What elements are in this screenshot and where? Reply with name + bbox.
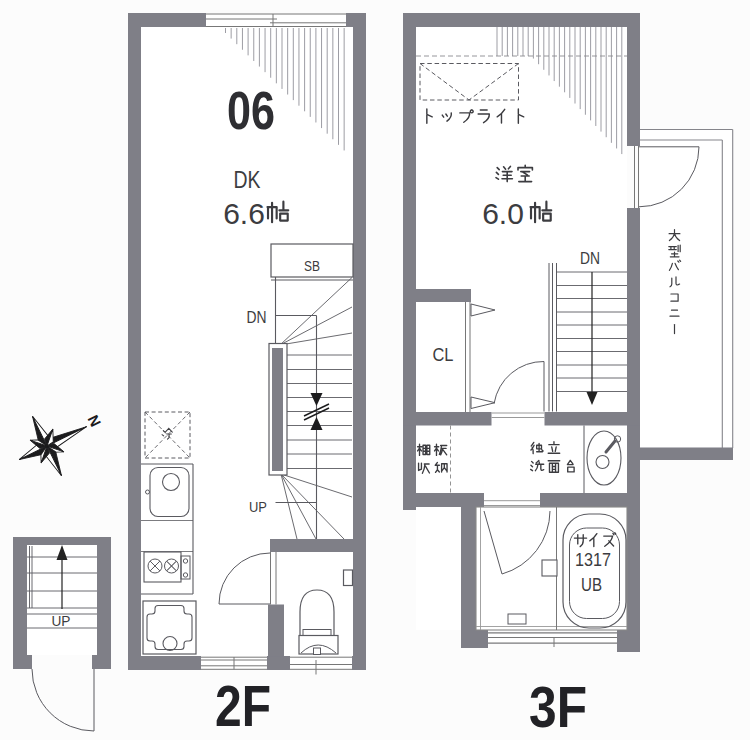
svg-text:06: 06 xyxy=(227,80,275,140)
svg-text:DK: DK xyxy=(234,167,262,193)
svg-text:3F: 3F xyxy=(529,674,587,739)
svg-text:UP: UP xyxy=(52,612,71,629)
svg-text:6.0: 6.0 xyxy=(482,197,524,230)
svg-text:UB: UB xyxy=(581,574,602,595)
svg-text:UP: UP xyxy=(249,498,267,515)
svg-text:1317: 1317 xyxy=(575,549,611,570)
svg-text:2F: 2F xyxy=(215,673,271,738)
svg-text:6.6: 6.6 xyxy=(223,197,265,230)
svg-text:SB: SB xyxy=(304,257,320,274)
svg-text:DN: DN xyxy=(247,308,267,327)
svg-text:DN: DN xyxy=(580,249,600,268)
svg-text:CL: CL xyxy=(433,344,454,365)
